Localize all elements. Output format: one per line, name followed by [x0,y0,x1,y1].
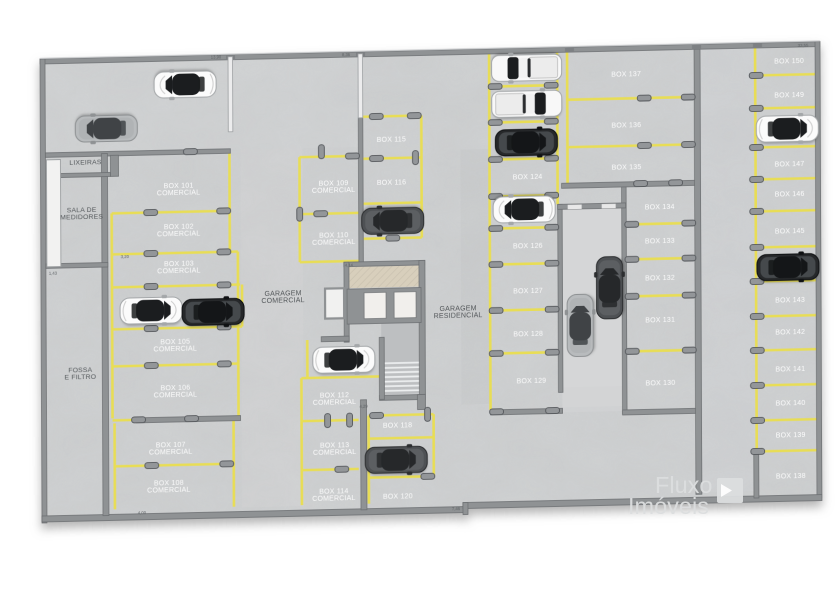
svg-text:BOX 140: BOX 140 [776,400,806,408]
svg-text:BOX 131: BOX 131 [645,317,675,325]
svg-text:COMERCIAL: COMERCIAL [154,391,197,399]
svg-text:BOX 128: BOX 128 [513,331,543,339]
svg-text:Imóveis: Imóveis [628,493,709,519]
svg-text:COMERCIAL: COMERCIAL [313,449,356,457]
svg-text:BOX 141: BOX 141 [775,366,805,374]
svg-text:BOX 129: BOX 129 [517,378,547,386]
svg-text:RESIDENCIAL: RESIDENCIAL [434,312,483,320]
svg-text:BOX 139: BOX 139 [776,432,806,440]
svg-text:COMERCIAL: COMERCIAL [149,448,192,456]
svg-text:BOX 133: BOX 133 [645,238,675,246]
svg-text:BOX 130: BOX 130 [646,380,676,388]
svg-text:BOX 115: BOX 115 [377,136,406,144]
svg-text:E FILTRO: E FILTRO [65,374,97,382]
svg-text:COMERCIAL: COMERCIAL [312,239,355,247]
svg-text:BOX 136: BOX 136 [611,122,641,130]
svg-text:BOX 142: BOX 142 [775,329,805,337]
svg-text:BOX 138: BOX 138 [776,473,806,481]
svg-text:COMERCIAL: COMERCIAL [312,495,355,503]
svg-text:COMERCIAL: COMERCIAL [154,345,197,353]
svg-text:4,14: 4,14 [345,262,354,267]
svg-text:BOX 120: BOX 120 [383,493,413,501]
svg-text:4,00: 4,00 [138,510,147,515]
svg-text:BOX 116: BOX 116 [377,179,406,187]
svg-text:COMERCIAL: COMERCIAL [313,399,356,407]
svg-text:BOX 118: BOX 118 [383,422,412,430]
svg-text:BOX 135: BOX 135 [612,164,642,172]
svg-text:BOX 150: BOX 150 [774,58,804,66]
svg-text:MEDIDORES: MEDIDORES [60,214,103,222]
svg-text:13,90: 13,90 [211,55,222,60]
svg-text:BOX 147: BOX 147 [775,161,805,169]
svg-text:BOX 134: BOX 134 [645,204,675,212]
svg-text:1,43: 1,43 [49,271,58,276]
svg-text:LIXEIRAS: LIXEIRAS [69,159,101,167]
svg-text:COMERCIAL: COMERCIAL [157,230,200,238]
svg-text:BOX 124: BOX 124 [513,174,543,182]
svg-text:33,55: 33,55 [798,43,809,48]
svg-text:BOX 149: BOX 149 [774,92,804,100]
svg-text:COMERCIAL: COMERCIAL [312,187,355,195]
svg-text:BOX 143: BOX 143 [775,297,805,305]
svg-text:COMERCIAL: COMERCIAL [147,486,190,494]
svg-text:3,20: 3,20 [121,254,130,259]
svg-text:BOX 137: BOX 137 [611,71,641,79]
svg-text:BOX 145: BOX 145 [775,228,805,236]
svg-text:BOX 127: BOX 127 [513,288,543,296]
svg-text:BOX 146: BOX 146 [775,191,805,199]
svg-text:BOX 132: BOX 132 [645,275,675,283]
svg-text:4,29: 4,29 [359,404,368,409]
svg-text:7,46: 7,46 [452,506,461,511]
svg-text:8,36: 8,36 [342,52,351,57]
svg-text:COMERCIAL: COMERCIAL [261,297,304,305]
svg-text:BOX 126: BOX 126 [513,243,543,251]
svg-text:COMERCIAL: COMERCIAL [157,189,200,197]
svg-text:COMERCIAL: COMERCIAL [157,267,200,275]
